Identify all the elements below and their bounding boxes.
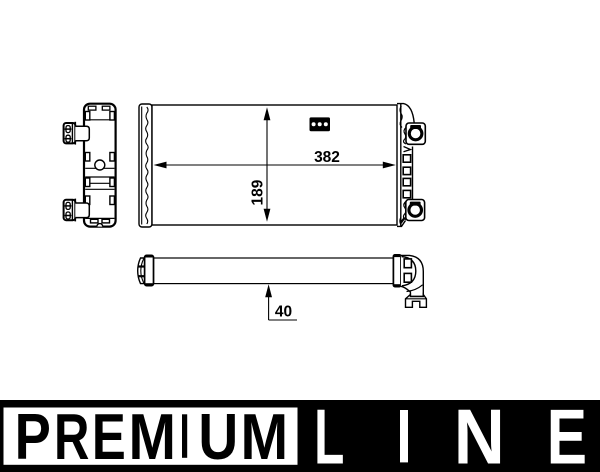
svg-text:382: 382 bbox=[314, 149, 340, 166]
svg-text:U: U bbox=[198, 401, 238, 472]
svg-text:R: R bbox=[54, 401, 89, 472]
svg-text:M: M bbox=[129, 400, 176, 472]
svg-text:189: 189 bbox=[250, 179, 267, 205]
svg-text:E: E bbox=[547, 393, 587, 472]
svg-text:E: E bbox=[92, 401, 126, 472]
svg-text:N: N bbox=[454, 392, 505, 472]
svg-text:40: 40 bbox=[275, 304, 292, 321]
svg-text:P: P bbox=[15, 400, 51, 472]
svg-text:M: M bbox=[241, 400, 289, 472]
svg-text:L: L bbox=[314, 393, 344, 472]
